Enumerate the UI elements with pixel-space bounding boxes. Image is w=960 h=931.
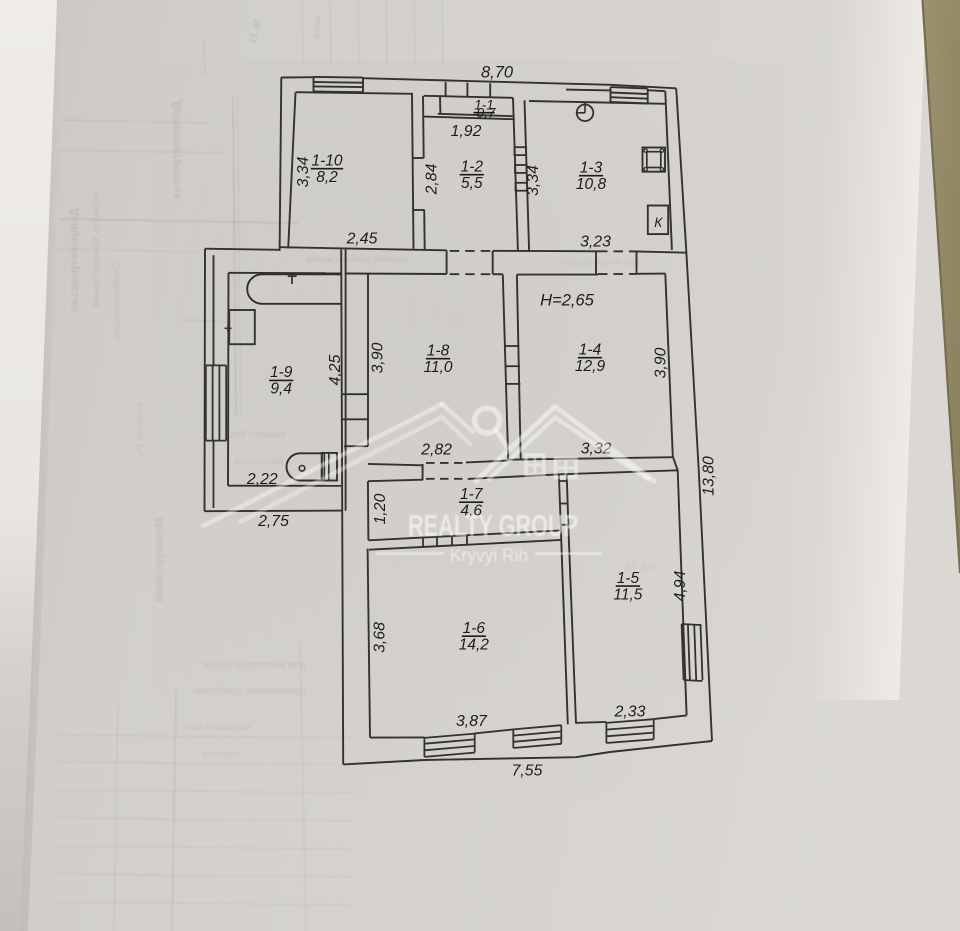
- svg-text:1,20: 1,20: [372, 493, 389, 524]
- svg-text:11,0: 11,0: [423, 359, 452, 376]
- svg-text:Дніпропетровська: Дніпропетровська: [69, 208, 81, 313]
- svg-text:4,94: 4,94: [672, 570, 689, 601]
- svg-text:2,82: 2,82: [420, 441, 452, 458]
- svg-text:будинок: будинок: [202, 749, 241, 760]
- svg-text:відомості про: відомості про: [185, 722, 251, 733]
- svg-text:14,2: 14,2: [459, 637, 490, 654]
- svg-text:Kryvyi Rih: Kryvyi Rih: [450, 546, 528, 566]
- svg-text:8,2: 8,2: [316, 169, 338, 186]
- svg-text:Металургійний: Металургійний: [154, 518, 166, 602]
- svg-text:8,70: 8,70: [481, 64, 514, 82]
- svg-text:3,90: 3,90: [653, 347, 670, 378]
- svg-text:12,9: 12,9: [575, 358, 606, 375]
- svg-text:1-6: 1-6: [463, 620, 486, 637]
- svg-text:2,75: 2,75: [257, 513, 289, 530]
- svg-text:3,34: 3,34: [525, 165, 542, 196]
- svg-text:9,4: 9,4: [270, 381, 292, 398]
- svg-text:1-9: 1-9: [270, 364, 293, 381]
- svg-text:проживання прибулим: проживання прибулим: [193, 685, 306, 697]
- svg-text:3,68: 3,68: [372, 622, 389, 653]
- svg-text:10,8: 10,8: [576, 176, 607, 193]
- svg-text:3,90: 3,90: [370, 342, 387, 373]
- svg-text:4,25: 4,25: [327, 354, 344, 385]
- svg-text:надвірні буд: надвірні буд: [230, 429, 286, 439]
- svg-text:2,84: 2,84: [424, 163, 441, 195]
- svg-text:1-8: 1-8: [427, 343, 450, 360]
- svg-text:Слобожанська: Слобожанська: [111, 260, 123, 341]
- svg-text:2,22: 2,22: [246, 471, 278, 488]
- svg-text:3,23: 3,23: [580, 234, 611, 251]
- svg-text:1-4: 1-4: [579, 342, 602, 359]
- svg-text:3,87: 3,87: [456, 713, 488, 730]
- svg-text:1-5: 1-5: [617, 570, 640, 587]
- svg-text:1-10: 1-10: [311, 153, 342, 170]
- svg-text:область Криворізький: область Криворізький: [90, 192, 102, 309]
- svg-text:0,7: 0,7: [477, 106, 496, 121]
- svg-text:2,33: 2,33: [614, 704, 646, 721]
- svg-text:H=2,65: H=2,65: [540, 292, 594, 310]
- svg-text:1-7: 1-7: [460, 486, 484, 503]
- svg-text:вбиральня: вбиральня: [235, 456, 284, 466]
- svg-text:мати: мати: [311, 16, 324, 40]
- svg-text:5,5: 5,5: [461, 175, 483, 192]
- svg-text:7,55: 7,55: [512, 763, 543, 780]
- svg-text:Дніпропетровськ: Дніпропетровськ: [171, 101, 183, 199]
- svg-text:Кривий Ріг: Кривий Ріг: [134, 402, 146, 458]
- svg-text:1-2: 1-2: [461, 159, 484, 176]
- svg-text:К: К: [654, 215, 663, 230]
- svg-text:для власн будівлі: для власн будівлі: [560, 257, 640, 267]
- svg-text:REALTY GROUP: REALTY GROUP: [408, 508, 578, 543]
- svg-text:1-3: 1-3: [580, 160, 603, 177]
- svg-text:клаптик ділянки житло: клаптик ділянки житло: [305, 254, 408, 264]
- svg-text:11,5: 11,5: [613, 586, 642, 603]
- svg-text:2,45: 2,45: [346, 231, 378, 248]
- svg-text:1,92: 1,92: [451, 123, 482, 140]
- svg-text:13,80: 13,80: [701, 456, 718, 496]
- svg-text:3,34: 3,34: [295, 156, 312, 187]
- svg-text:для реєстрації місця: для реєстрації місця: [203, 660, 306, 671]
